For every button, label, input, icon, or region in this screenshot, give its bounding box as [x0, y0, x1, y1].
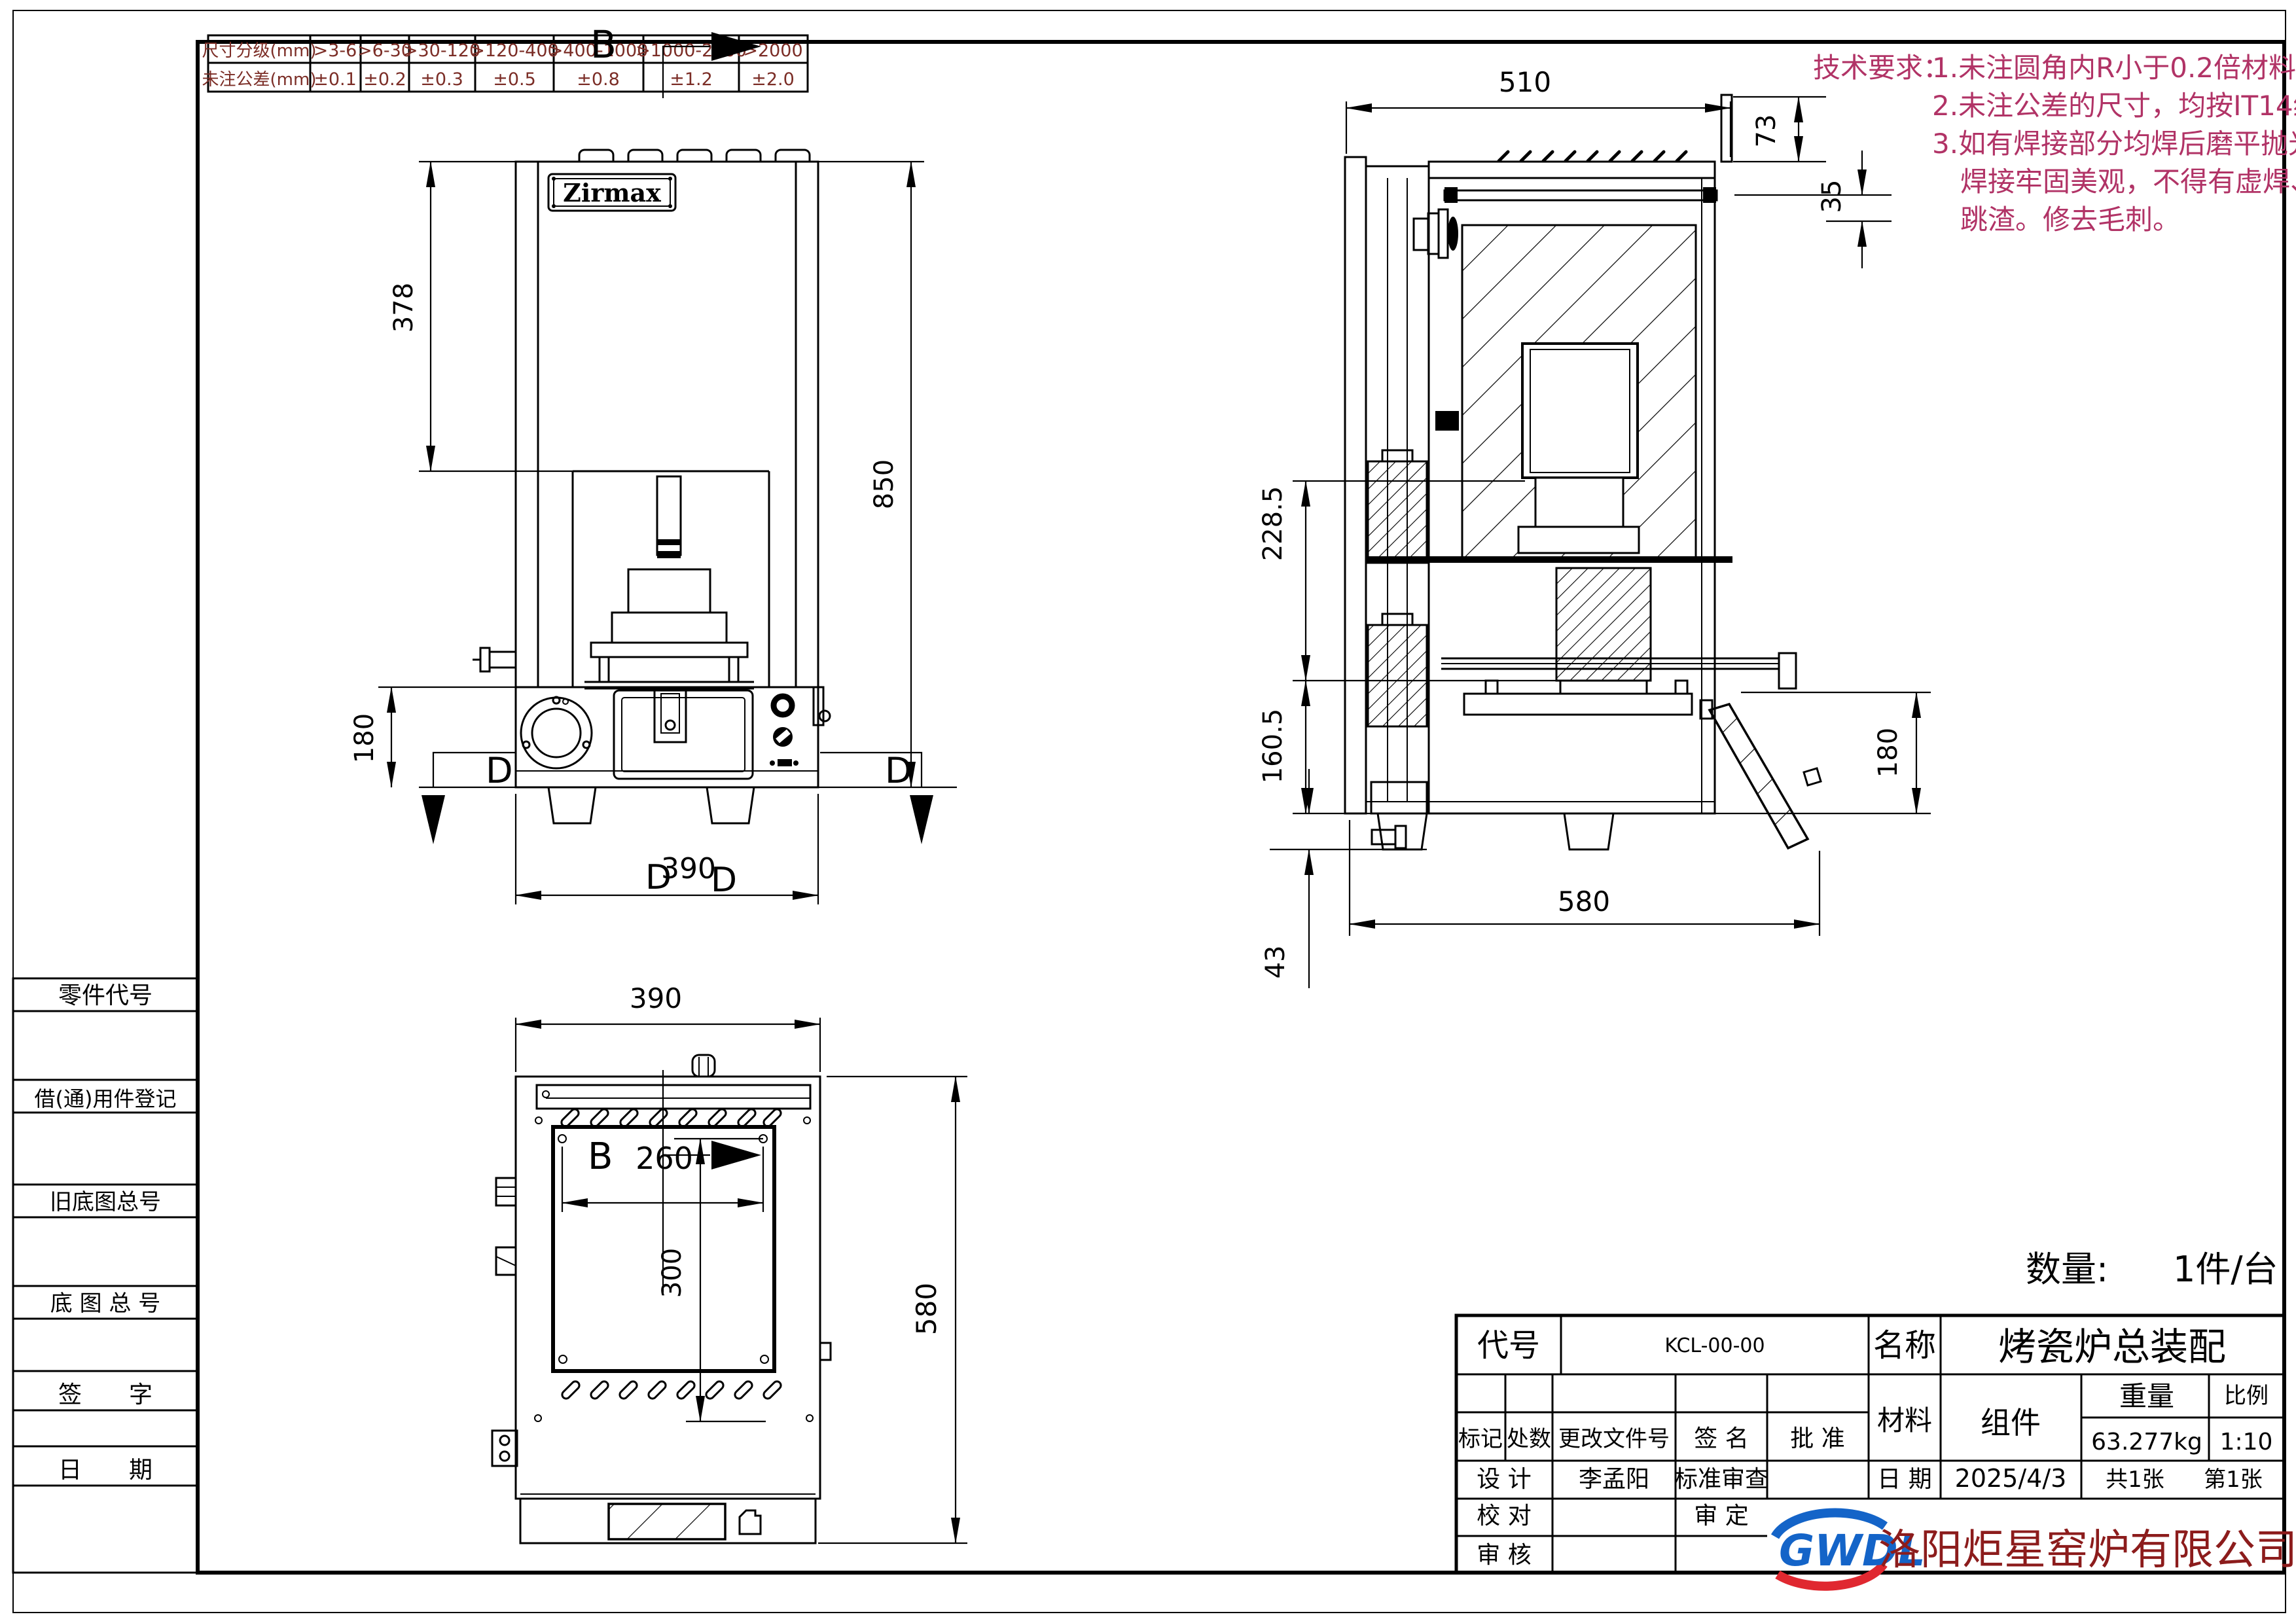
front-base	[516, 687, 830, 823]
bottom-left-hardware	[492, 1178, 831, 1466]
dim-260-text: 260	[636, 1141, 693, 1176]
bottom-small-icon	[740, 1510, 761, 1534]
brand-nameplate: Zirmax	[548, 174, 675, 211]
side-foot-right	[1564, 813, 1613, 849]
tb-zujian: 组件	[1981, 1405, 2041, 1440]
side-door	[1700, 700, 1821, 848]
dim-580-bottom-text: 580	[910, 1283, 942, 1335]
dim-390-front-text: 390	[661, 852, 716, 885]
tb-biaozhun-shencha: 标准审查	[1674, 1466, 1768, 1493]
tb-sheet-no: 第1张	[2204, 1467, 2263, 1493]
brand-text: Zirmax	[563, 178, 661, 207]
bottom-b-label: B	[588, 1135, 613, 1178]
tol-value-3: ±0.5	[493, 69, 536, 90]
drawing-canvas: 零件代号 借(通)用件登记 旧底图总号 底 图 总 号 签 字 日 期 尺寸分级…	[0, 0, 2296, 1623]
tb-biaoji: 标记	[1458, 1426, 1503, 1452]
front-top-vents	[579, 150, 810, 162]
side-view: 510 73 35 228.5 160.5	[1258, 66, 1931, 988]
left-margin-panel: 零件代号 借(通)用件登记 旧底图总号 底 图 总 号 签 字 日 期	[13, 978, 198, 1573]
quantity-value: 1件/台	[2173, 1249, 2278, 1290]
company-name: 洛阳炬星窑炉有限公司	[1878, 1526, 2296, 1575]
left-panel-label-date: 日 期	[58, 1457, 152, 1484]
dim-228-5-text: 228.5	[1258, 486, 1288, 562]
tech-req-title: 技术要求：	[1813, 52, 1950, 84]
title-block: 代号 KCL-00-00 名称 烤瓷炉总装配 标记 处数 更改文件号 签 名 批…	[1456, 1315, 2296, 1586]
power-knob[interactable]	[774, 696, 792, 715]
dim-300-text: 300	[657, 1248, 687, 1298]
sheet-frame	[13, 10, 2286, 1613]
section-d-label-left: D	[486, 750, 513, 791]
front-left-clamp	[473, 648, 516, 671]
tb-chushu: 处数	[1507, 1426, 1551, 1452]
tol-value-4: ±0.8	[577, 69, 620, 90]
tol-value-0: ±0.1	[314, 69, 357, 90]
side-dim-35: 35	[1734, 151, 1892, 268]
tb-shending: 审 定	[1694, 1503, 1748, 1529]
front-foot-left	[548, 787, 596, 823]
bottom-dim-390: 390	[516, 982, 820, 1072]
dim-43-text: 43	[1261, 946, 1291, 979]
tb-mingcheng-label: 名称	[1873, 1327, 1936, 1364]
tb-sheji-name: 李孟阳	[1579, 1466, 1649, 1493]
side-gland	[1414, 209, 1458, 258]
left-panel-label-old-master: 旧底图总号	[50, 1189, 161, 1215]
drawing-sheet: 零件代号 借(通)用件登记 旧底图总号 底 图 总 号 签 字 日 期 尺寸分级…	[0, 0, 2296, 1623]
tol-row2-label: 未注公差(mm)	[202, 70, 317, 90]
tb-shenhe: 审 核	[1477, 1542, 1531, 1569]
tech-req-line-1: 1.未注圆角内R小于0.2倍材料厚度。	[1932, 52, 2296, 84]
tol-range-3: >120-400	[470, 41, 558, 61]
dim-850-text: 850	[869, 459, 899, 509]
quantity-label: 数量:	[2026, 1249, 2108, 1290]
front-housing	[516, 162, 818, 687]
tech-requirements: 技术要求： 1.未注圆角内R小于0.2倍材料厚度。 2.未注公差的尺寸，均按IT…	[1813, 52, 2296, 236]
tb-jiaodui: 校 对	[1477, 1503, 1531, 1529]
bottom-dim-300: 300	[657, 1139, 766, 1421]
section-b-label: B	[590, 22, 617, 67]
front-view: B Zirmax	[350, 22, 957, 904]
tb-daihao-label: 代号	[1477, 1327, 1540, 1364]
dim-580-side-text: 580	[1558, 885, 1610, 918]
left-panel-label-master: 底 图 总 号	[50, 1291, 160, 1317]
tb-riqi-value: 2025/4/3	[1955, 1464, 2067, 1493]
side-dim-580: 580	[1350, 820, 1820, 936]
section-d-label-right: D	[885, 750, 912, 791]
dim-180-side-text: 180	[1873, 728, 1903, 777]
tol-range-0: >3-6	[314, 41, 357, 61]
tech-req-line-5: 跳渣。修去毛刺。	[1960, 204, 2180, 236]
side-top-fins	[1499, 152, 1686, 161]
bottom-slots-bottom	[560, 1380, 782, 1400]
side-dim-73: 73	[1733, 97, 1826, 162]
tb-qianming: 签 名	[1694, 1425, 1748, 1452]
bottom-hatched-plate	[609, 1504, 725, 1539]
front-dim-390: D 390 D	[516, 794, 818, 904]
front-chamber	[573, 471, 769, 742]
front-dim-850: 850	[818, 162, 924, 787]
front-dim-378: 378	[389, 162, 573, 471]
tol-range-2: >30-120	[403, 41, 480, 61]
tb-zhongliang-value: 63.277kg	[2091, 1429, 2202, 1455]
left-panel-label-borrow: 借(通)用件登记	[35, 1086, 177, 1111]
tb-sheji: 设 计	[1477, 1466, 1531, 1493]
touchscreen-display[interactable]	[614, 690, 753, 779]
dim-390-d-right: D	[711, 861, 737, 900]
tol-value-6: ±2.0	[751, 69, 795, 90]
bottom-slots-top	[560, 1107, 782, 1128]
tol-value-5: ±1.2	[670, 69, 713, 90]
left-panel-label-part-code: 零件代号	[58, 982, 152, 1009]
tb-zhongliang-label: 重量	[2119, 1380, 2174, 1412]
dim-378-text: 378	[389, 283, 419, 332]
tb-mingcheng-value: 烤瓷炉总装配	[1998, 1325, 2226, 1369]
bottom-dim-580: 580	[818, 1077, 967, 1543]
tb-bili-value: 1:10	[2220, 1429, 2273, 1455]
dim-73-text: 73	[1751, 115, 1782, 148]
dim-35-text: 35	[1817, 180, 1847, 213]
tol-range-6: >2000	[743, 41, 802, 61]
tb-daihao-value: KCL-00-00	[1664, 1334, 1765, 1357]
tech-req-line-4: 焊接牢固美观，不得有虚焊、	[1960, 166, 2296, 198]
tech-req-line-3: 3.如有焊接部分均焊后磨平抛光，	[1932, 128, 2296, 160]
left-panel-label-signature: 签 字	[58, 1382, 152, 1408]
dim-510-text: 510	[1499, 66, 1551, 98]
tol-row1-label: 尺寸分级(mm)	[202, 41, 317, 61]
indicator-light	[778, 759, 792, 766]
dim-160-5-text: 160.5	[1258, 709, 1288, 784]
side-dim-510: 510	[1346, 66, 1731, 157]
tb-riqi-label: 日 期	[1877, 1466, 1931, 1493]
dim-180-front-text: 180	[350, 713, 380, 763]
front-foot-right	[707, 787, 754, 823]
dim-390-bottom-text: 390	[630, 982, 682, 1014]
tol-value-2: ±0.3	[420, 69, 463, 90]
tech-req-line-2: 2.未注公差的尺寸，均按IT14级！	[1932, 90, 2296, 122]
tb-cailiao: 材料	[1877, 1404, 1932, 1436]
tb-genggai: 更改文件号	[1558, 1426, 1670, 1452]
side-lift-mechanism	[1368, 178, 1427, 848]
section-d-markers: D D	[419, 750, 957, 844]
tb-bili-label: 比例	[2224, 1383, 2269, 1409]
side-dim-160-5: 160.5	[1258, 681, 1306, 813]
tb-pizhun: 批 准	[1790, 1425, 1844, 1452]
bottom-view: B 260 300 390 580	[492, 982, 967, 1543]
bottom-cable-gland	[692, 1055, 715, 1077]
tb-sheets-total: 共1张	[2106, 1467, 2164, 1493]
company-logo: GWDL 洛阳炬星窑炉有限公司	[1775, 1513, 2296, 1586]
tol-value-1: ±0.2	[363, 69, 406, 90]
quantity-note: 数量: 1件/台	[2026, 1249, 2278, 1290]
